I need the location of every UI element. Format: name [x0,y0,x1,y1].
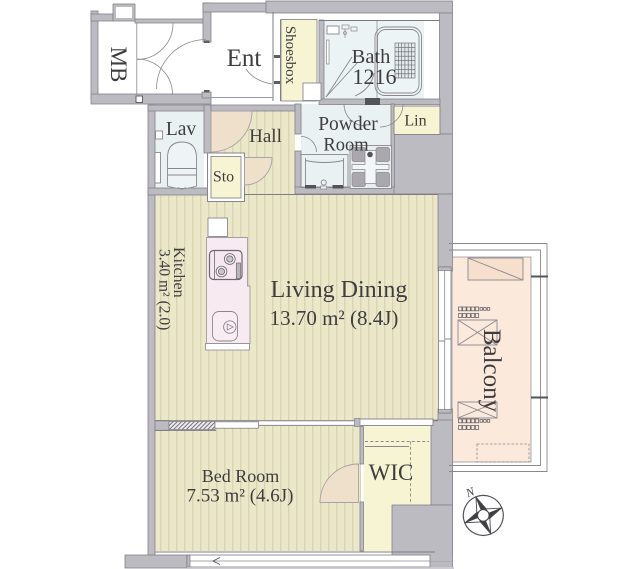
svg-text:Lav: Lav [166,119,197,140]
svg-text:3.40 m² (2.0): 3.40 m² (2.0) [156,249,173,330]
svg-text:Living Dining: Living Dining [271,277,408,303]
svg-text:MB: MB [106,47,131,83]
svg-text:WIC: WIC [369,460,414,485]
svg-text:Hall: Hall [249,126,282,147]
svg-text:Sto: Sto [213,169,234,186]
svg-text:Powder: Powder [318,114,378,135]
svg-text:7.53 m² (4.6J): 7.53 m² (4.6J) [186,486,293,507]
svg-text:Balcony: Balcony [478,329,505,413]
svg-text:Bed Room: Bed Room [202,466,280,486]
svg-text:13.70 m² (8.4J): 13.70 m² (8.4J) [270,306,399,330]
svg-text:1216: 1216 [353,64,397,89]
svg-text:Lin: Lin [404,113,426,130]
svg-text:Ent: Ent [227,45,262,72]
svg-text:Room: Room [323,136,369,156]
svg-text:Shoesbox: Shoesbox [282,26,298,85]
